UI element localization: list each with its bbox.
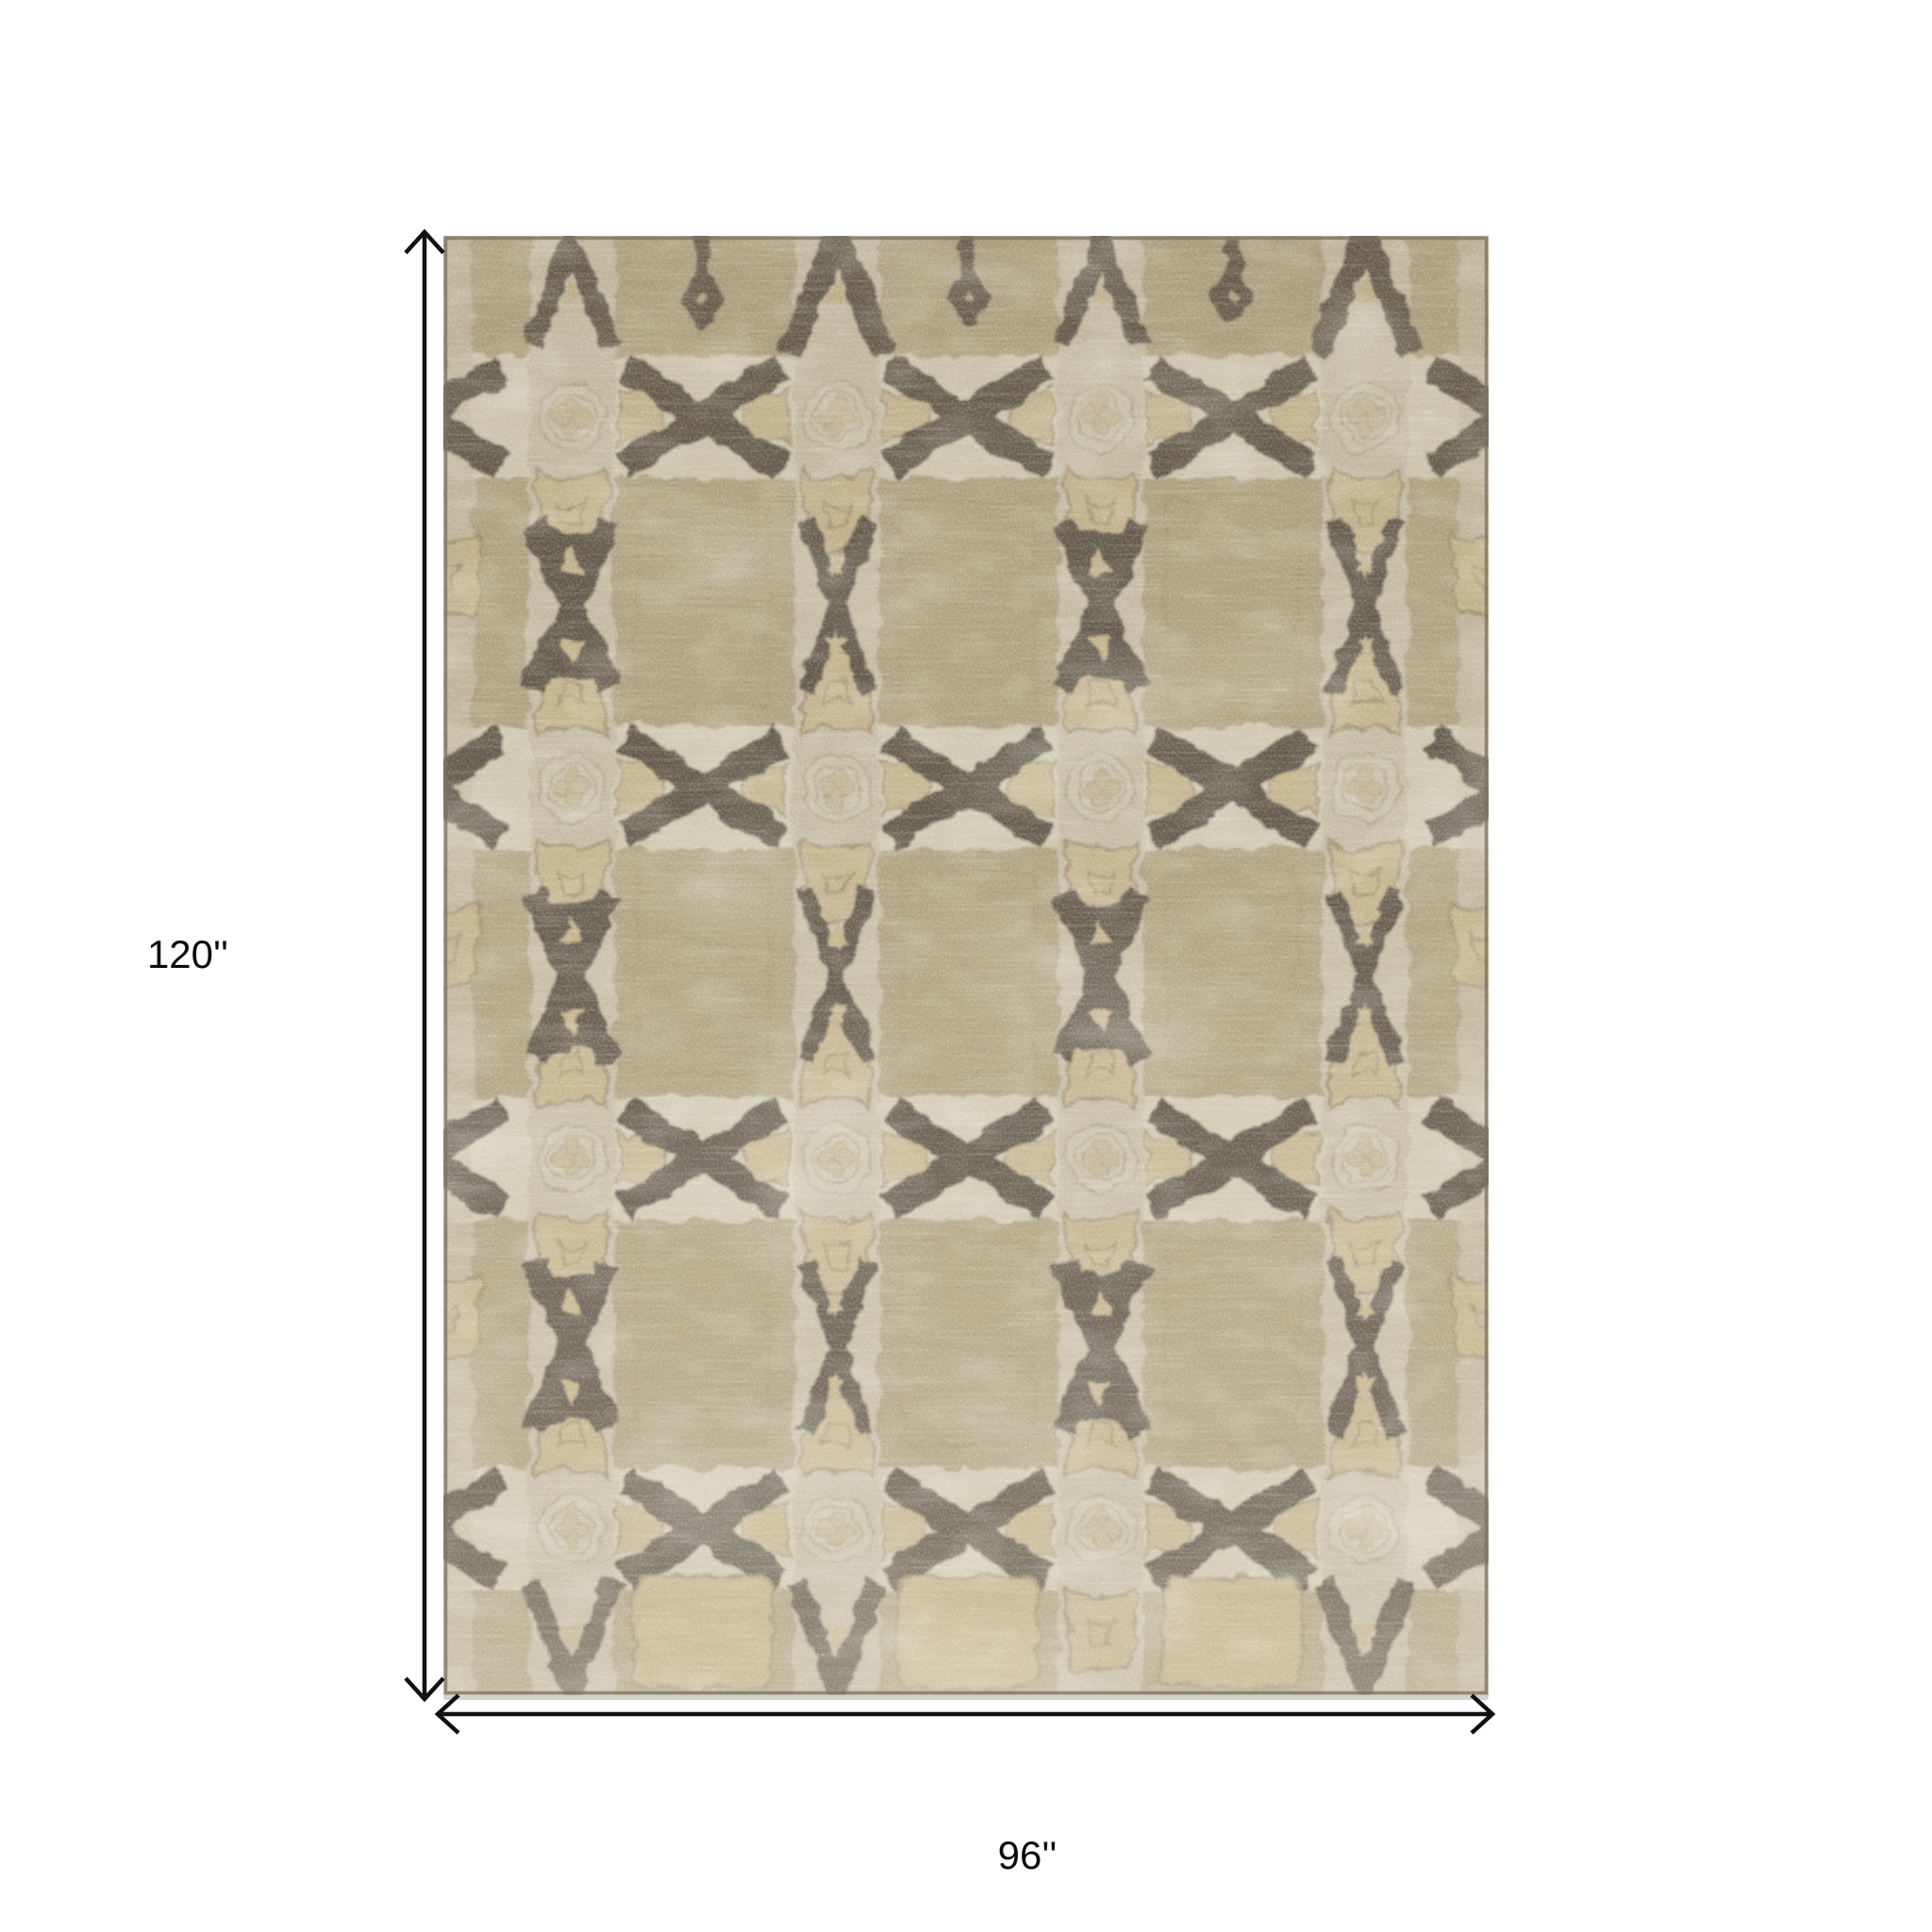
svg-text:96'': 96'' (998, 1833, 1058, 1877)
svg-text:120'': 120'' (147, 932, 228, 976)
